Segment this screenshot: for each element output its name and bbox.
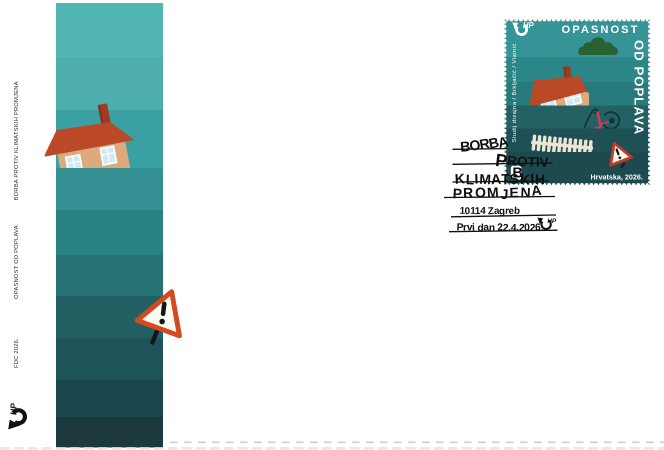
svg-text:HP: HP [547,218,557,225]
svg-text:BORBA PROTIV KLIMATSKIH PROMJE: BORBA PROTIV KLIMATSKIH PROMJENA [14,81,20,200]
svg-text:OPASNOST: OPASNOST [562,24,640,36]
svg-text:OD POPLAVA: OD POPLAVA [632,40,647,135]
svg-text:OPASNOST OD POPLAVA: OPASNOST OD POPLAVA [14,225,20,299]
svg-text:FDC 2026.: FDC 2026. [14,338,20,368]
svg-text:HP: HP [8,403,18,415]
svg-text:Studij dizajna / Brkljačić / V: Studij dizajna / Brkljačić / Vlainić [512,43,518,142]
svg-text:HP: HP [523,21,535,30]
svg-text:Hrvatska, 2026.: Hrvatska, 2026. [591,172,643,181]
svg-text:10114 Zagreb: 10114 Zagreb [459,206,520,217]
svg-text:Prvi dan 22.4.2026.: Prvi dan 22.4.2026. [456,222,543,234]
